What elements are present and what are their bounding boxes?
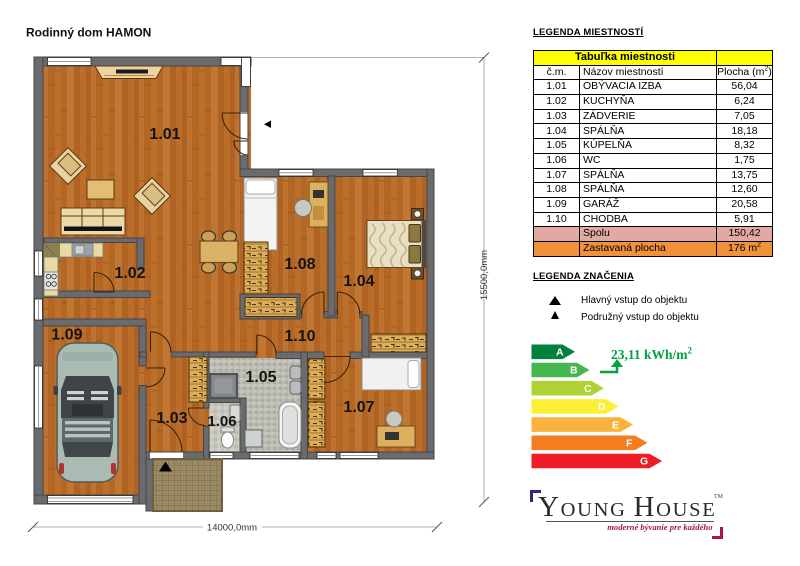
- svg-text:1.04: 1.04: [343, 273, 374, 290]
- svg-text:14000,0mm: 14000,0mm: [207, 523, 257, 534]
- svg-text:G: G: [640, 456, 648, 468]
- svg-text:B: B: [570, 365, 578, 377]
- svg-text:F: F: [626, 438, 633, 450]
- svg-text:Rodinný dom HAMON: Rodinný dom HAMON: [26, 26, 151, 40]
- svg-text:1.07: 1.07: [343, 399, 374, 416]
- svg-text:1.09: 1.09: [51, 327, 82, 344]
- svg-text:1.08: 1.08: [284, 256, 315, 273]
- svg-text:D: D: [598, 401, 606, 413]
- svg-text:1.03: 1.03: [156, 410, 187, 427]
- svg-text:A: A: [556, 347, 564, 359]
- svg-text:15500,0mm: 15500,0mm: [479, 250, 490, 300]
- svg-text:1.10: 1.10: [284, 328, 315, 345]
- svg-text:1.02: 1.02: [114, 265, 145, 282]
- svg-text:E: E: [612, 419, 619, 431]
- svg-text:1.01: 1.01: [149, 126, 180, 143]
- svg-text:C: C: [584, 383, 592, 395]
- svg-text:1.05: 1.05: [245, 369, 276, 386]
- svg-text:1.06: 1.06: [207, 413, 236, 430]
